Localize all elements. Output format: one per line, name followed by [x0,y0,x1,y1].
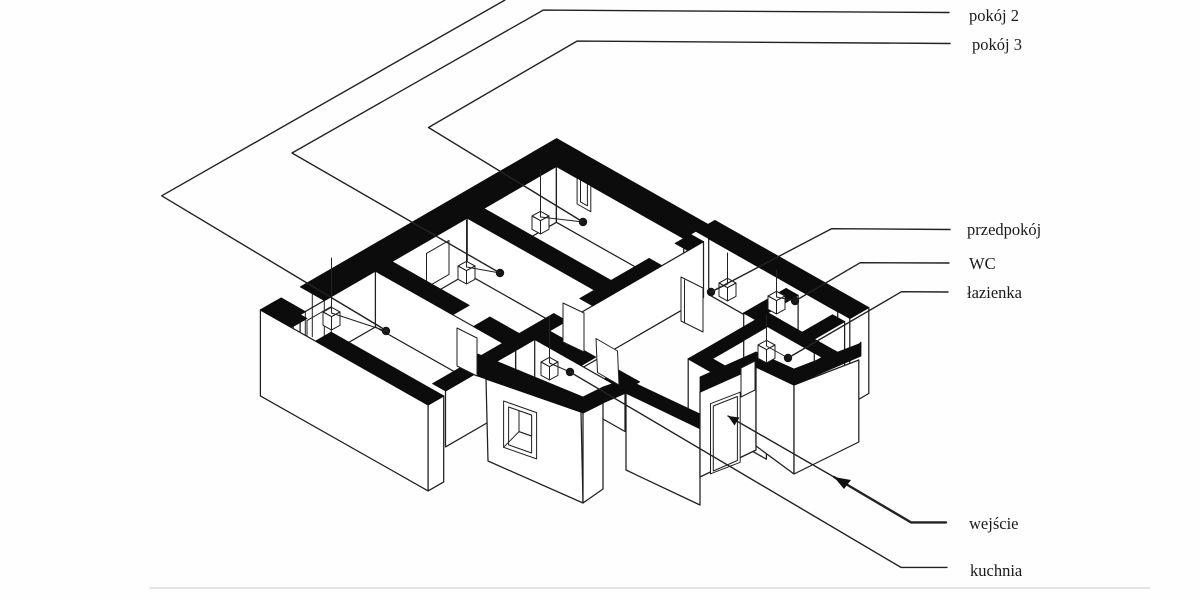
svg-text:pokój 3: pokój 3 [972,35,1022,54]
svg-text:WC: WC [969,254,996,273]
svg-text:przedpokój: przedpokój [967,220,1041,239]
svg-text:łazienka: łazienka [967,283,1023,302]
svg-text:wejście: wejście [969,514,1018,533]
svg-text:pokój 2: pokój 2 [969,6,1019,25]
svg-text:kuchnia: kuchnia [970,561,1023,580]
